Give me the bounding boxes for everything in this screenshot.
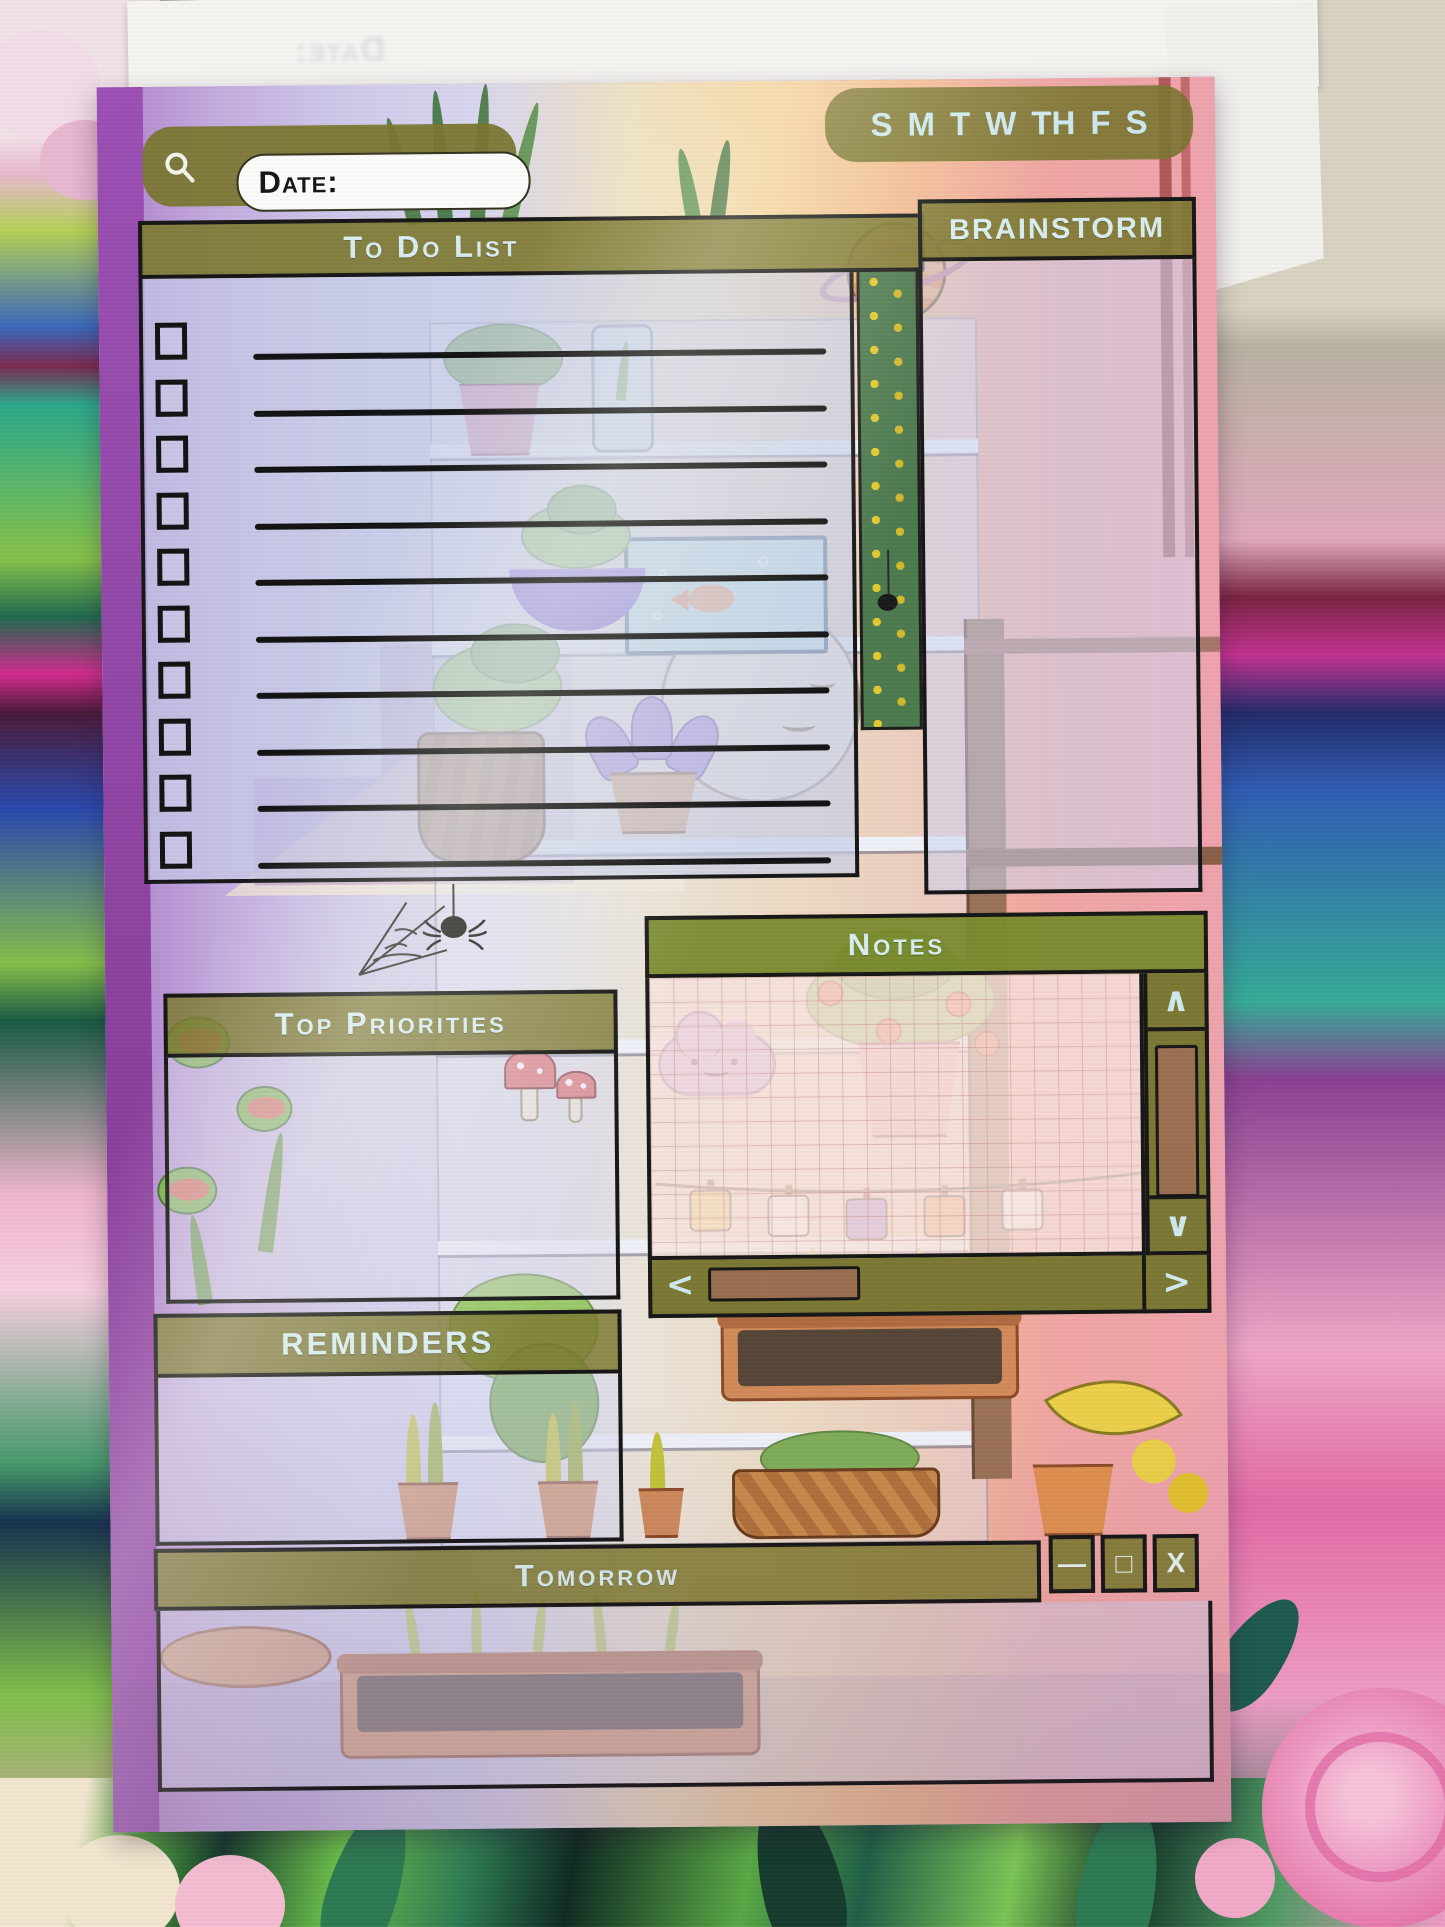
todo-write-line[interactable] <box>258 800 831 812</box>
todo-write-line[interactable] <box>256 631 829 643</box>
reminders-title: REMINDERS <box>281 1325 494 1363</box>
todo-checkbox[interactable] <box>159 775 191 812</box>
todo-checkbox[interactable] <box>160 831 192 868</box>
todo-row <box>148 825 855 872</box>
date-input[interactable]: Date: <box>236 151 531 212</box>
todo-checkbox[interactable] <box>156 436 188 473</box>
todo-write-line[interactable] <box>253 348 826 360</box>
minimize-button[interactable]: — <box>1049 1535 1096 1593</box>
weekday-list: SMTWTHFS <box>870 103 1147 144</box>
weekday-th[interactable]: TH <box>1031 104 1075 142</box>
vertical-scroll-thumb[interactable] <box>1155 1045 1199 1197</box>
todo-write-line[interactable] <box>254 461 827 473</box>
todo-row <box>143 373 850 420</box>
todo-title: To Do List <box>343 228 519 266</box>
planner-sheet: Date: SMTWTHFS To Do List BRAINSTORM Top… <box>97 77 1232 1833</box>
maximize-icon: □ <box>1115 1548 1132 1580</box>
scroll-down-button[interactable]: ∨ <box>1149 1195 1207 1252</box>
photo-scene: Date: <box>0 0 1445 1927</box>
rose-swirl <box>1305 1732 1445 1882</box>
todo-write-line[interactable] <box>255 518 828 530</box>
todo-checkbox[interactable] <box>158 605 190 642</box>
reminders-body[interactable] <box>154 1373 624 1545</box>
todo-row <box>147 768 854 815</box>
chevron-down-icon: ∨ <box>1164 1208 1192 1242</box>
todo-panel-header: To Do List <box>138 213 925 279</box>
todo-row <box>147 712 854 759</box>
todo-row <box>145 486 852 533</box>
weekday-s[interactable]: S <box>870 106 892 144</box>
date-label: Date: <box>258 164 338 201</box>
todo-write-line[interactable] <box>256 687 829 699</box>
top-priorities-title: Top Priorities <box>274 1005 506 1043</box>
weekday-s[interactable]: S <box>1125 103 1147 141</box>
weekday-w[interactable]: W <box>985 105 1017 143</box>
todo-row <box>146 655 853 702</box>
todo-row <box>145 542 852 589</box>
reminders-header: REMINDERS <box>153 1309 622 1377</box>
weekday-t[interactable]: T <box>950 105 971 143</box>
notes-body[interactable] <box>645 973 1146 1260</box>
small-spider-art <box>878 594 898 611</box>
todo-write-line[interactable] <box>254 405 827 417</box>
todo-checkbox[interactable] <box>157 492 189 529</box>
chevron-right-icon: > <box>1162 1265 1191 1299</box>
notes-title: Notes <box>848 926 946 963</box>
notes-header: Notes <box>645 911 1209 978</box>
todo-checkbox[interactable] <box>159 718 191 755</box>
notes-panel: Notes ∧ ∨ < > <box>645 911 1213 1484</box>
horizontal-scroll-thumb[interactable] <box>708 1266 860 1301</box>
todo-checkbox[interactable] <box>158 662 190 699</box>
todo-write-line[interactable] <box>255 574 828 586</box>
close-button[interactable]: X <box>1153 1534 1200 1592</box>
todo-checkbox[interactable] <box>155 379 187 416</box>
todo-write-line[interactable] <box>258 857 831 869</box>
top-priorities-body[interactable] <box>164 1053 620 1303</box>
todo-row <box>146 599 853 646</box>
chevron-left-icon: < <box>666 1268 695 1302</box>
minimize-icon: — <box>1058 1548 1086 1580</box>
spider-thread <box>452 884 454 918</box>
spider-thread <box>887 550 889 596</box>
weekday-m[interactable]: M <box>907 105 935 143</box>
brainstorm-title: BRAINSTORM <box>949 212 1165 247</box>
brainstorm-panel-header: BRAINSTORM <box>918 197 1197 262</box>
tomorrow-header: Tomorrow <box>154 1540 1042 1611</box>
todo-checkbox[interactable] <box>155 323 187 360</box>
search-icon[interactable] <box>160 148 198 186</box>
maximize-button[interactable]: □ <box>1101 1534 1148 1592</box>
notes-horizontal-scrollbar[interactable]: < <box>648 1255 1147 1318</box>
top-priorities-header: Top Priorities <box>163 989 618 1057</box>
notes-vertical-scrollbar[interactable]: ∧ ∨ <box>1143 973 1211 1256</box>
tomorrow-body[interactable] <box>156 1601 1214 1792</box>
brainstorm-panel-body[interactable] <box>918 259 1202 895</box>
hanging-wisteria-art <box>856 272 922 731</box>
tomorrow-title: Tomorrow <box>515 1557 680 1595</box>
ghost-bleed-text: Date: <box>293 30 386 71</box>
weekday-selector: SMTWTHFS <box>825 85 1194 163</box>
search-bar[interactable]: Date: <box>142 123 517 207</box>
small-flower <box>1195 1838 1275 1918</box>
todo-panel-body[interactable] <box>138 272 859 884</box>
weekday-f[interactable]: F <box>1090 104 1111 142</box>
scroll-right-button[interactable]: > <box>1146 1255 1212 1314</box>
todo-row <box>143 316 850 363</box>
todo-checkbox[interactable] <box>157 549 189 586</box>
chevron-up-icon: ∧ <box>1162 983 1190 1017</box>
scroll-up-button[interactable]: ∧ <box>1147 973 1205 1032</box>
todo-write-line[interactable] <box>257 744 830 756</box>
todo-rows <box>142 272 855 880</box>
close-icon: X <box>1166 1547 1185 1579</box>
todo-row <box>144 429 851 476</box>
scroll-left-button[interactable]: < <box>656 1260 704 1310</box>
spider-legs <box>423 920 487 951</box>
